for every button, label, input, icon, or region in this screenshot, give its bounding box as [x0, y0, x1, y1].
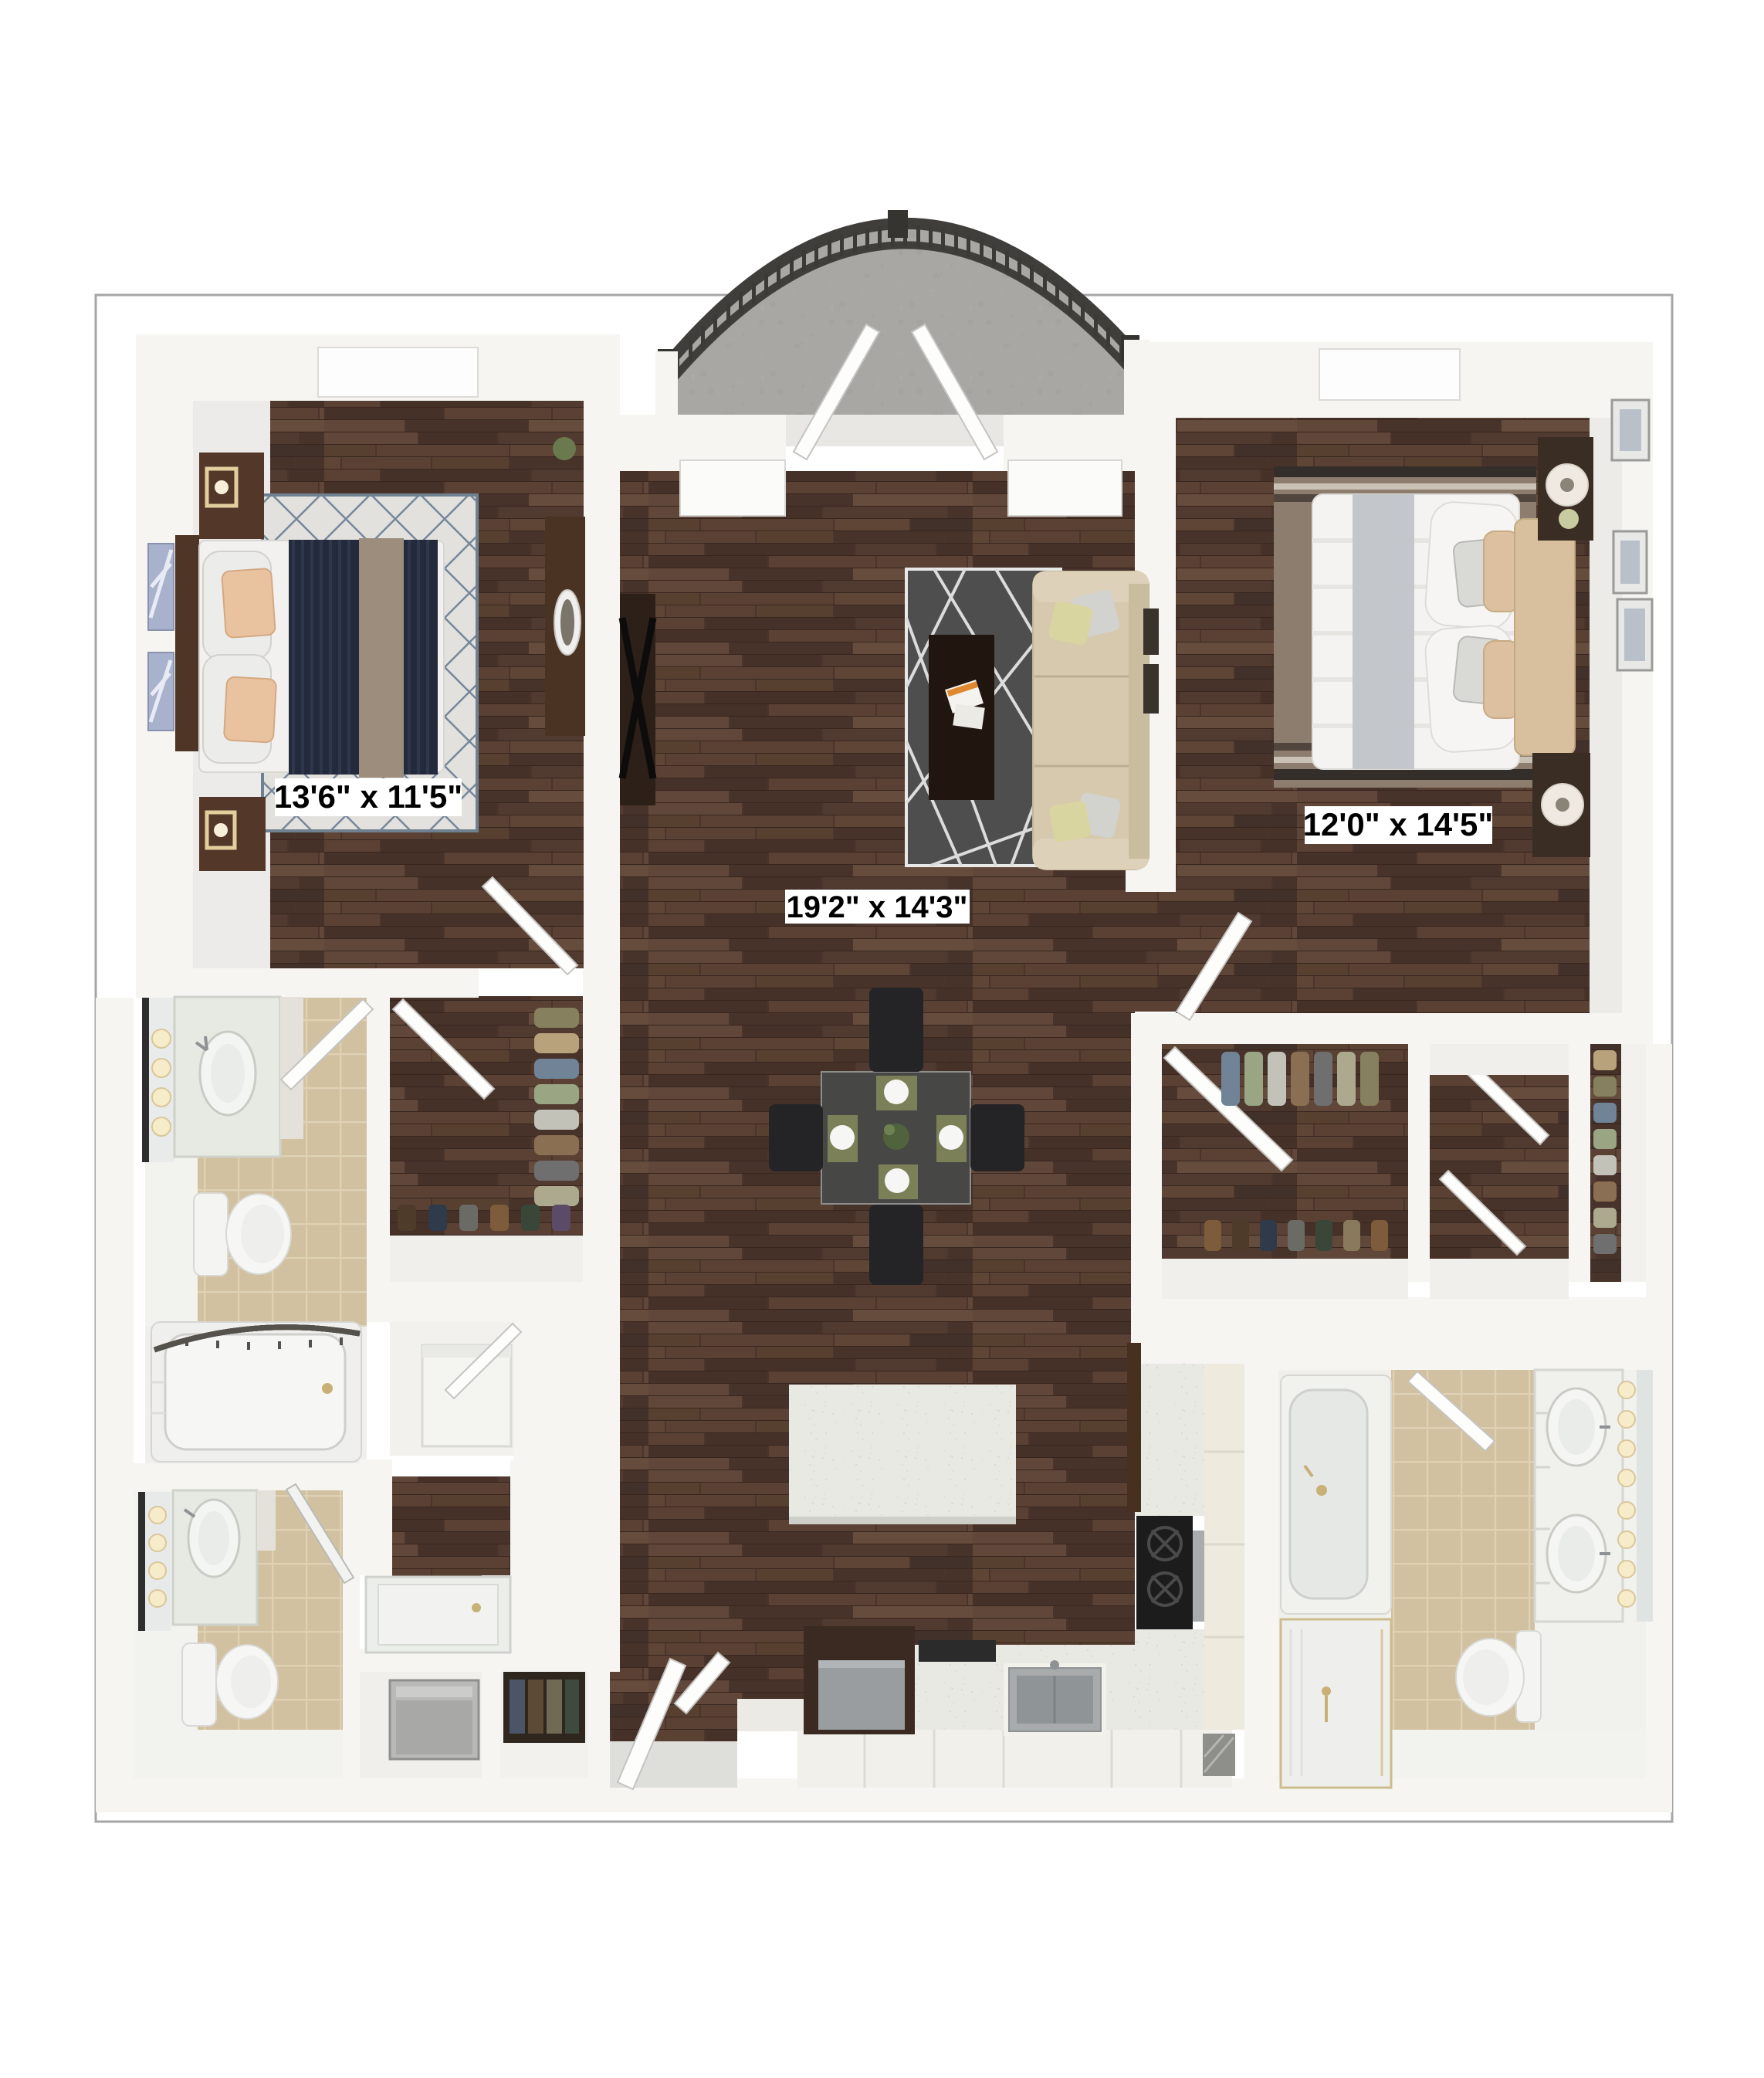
- svg-text:12'0" x 14'5": 12'0" x 14'5": [1303, 806, 1494, 842]
- svg-text:19'2" x 14'3": 19'2" x 14'3": [787, 890, 968, 924]
- svg-text:13'6" x 11'5": 13'6" x 11'5": [274, 778, 462, 815]
